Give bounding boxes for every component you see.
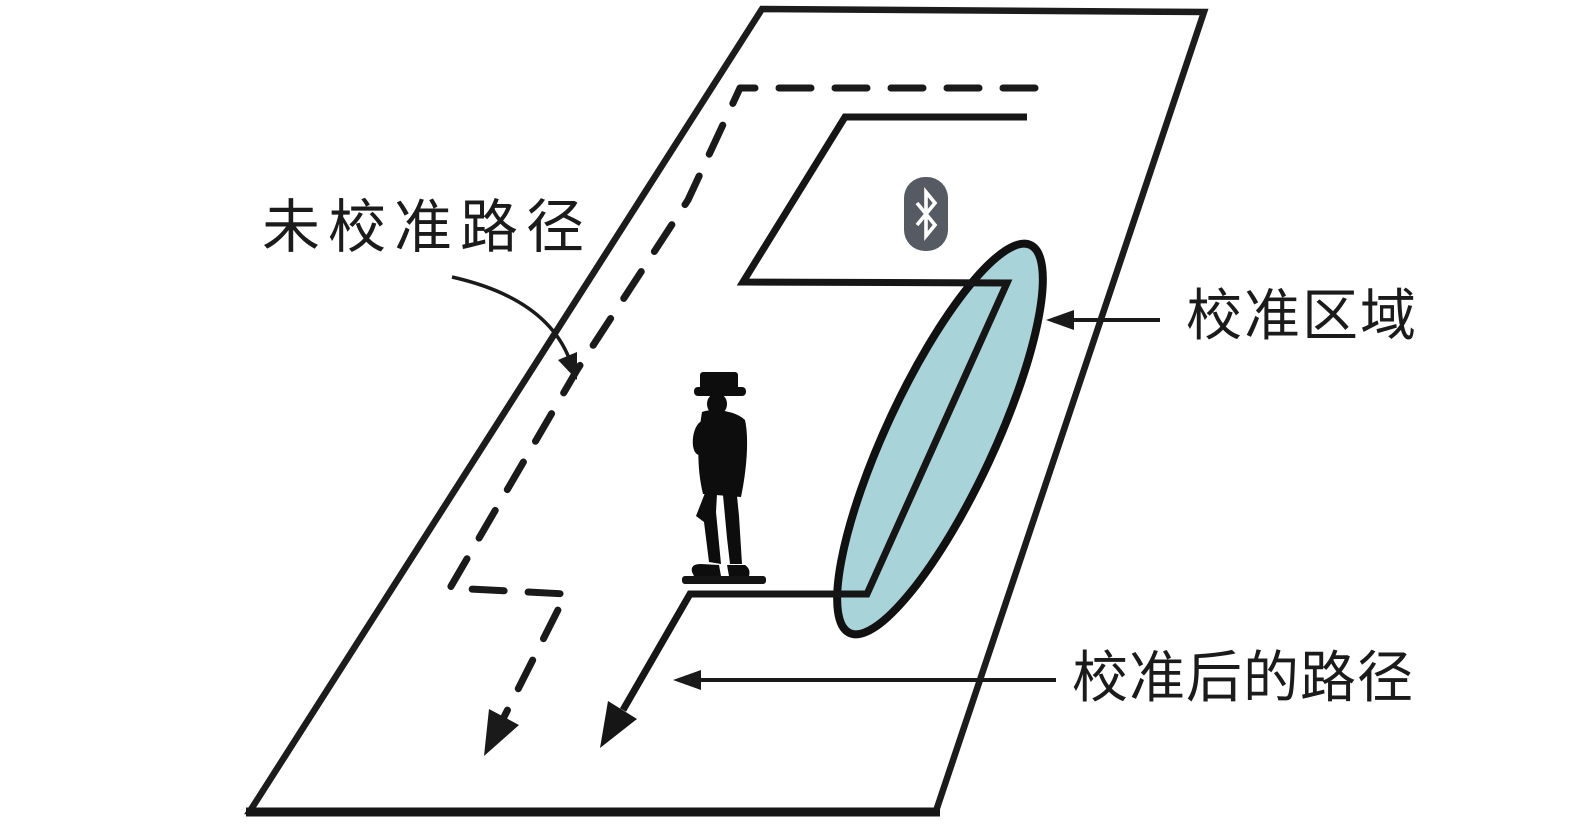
calibration-diagram: 未校准路径 校准区域 校准后的路径 [0, 0, 1575, 829]
floor-plane [250, 9, 1204, 811]
label-calibration-region: 校准区域 [1186, 289, 1418, 345]
bluetooth-icon [904, 177, 948, 251]
label-uncalibrated-path: 未校准路径 [262, 199, 592, 257]
label-calibrated-path: 校准后的路径 [1072, 651, 1414, 707]
pedestrian-ground-shadow [682, 576, 766, 584]
